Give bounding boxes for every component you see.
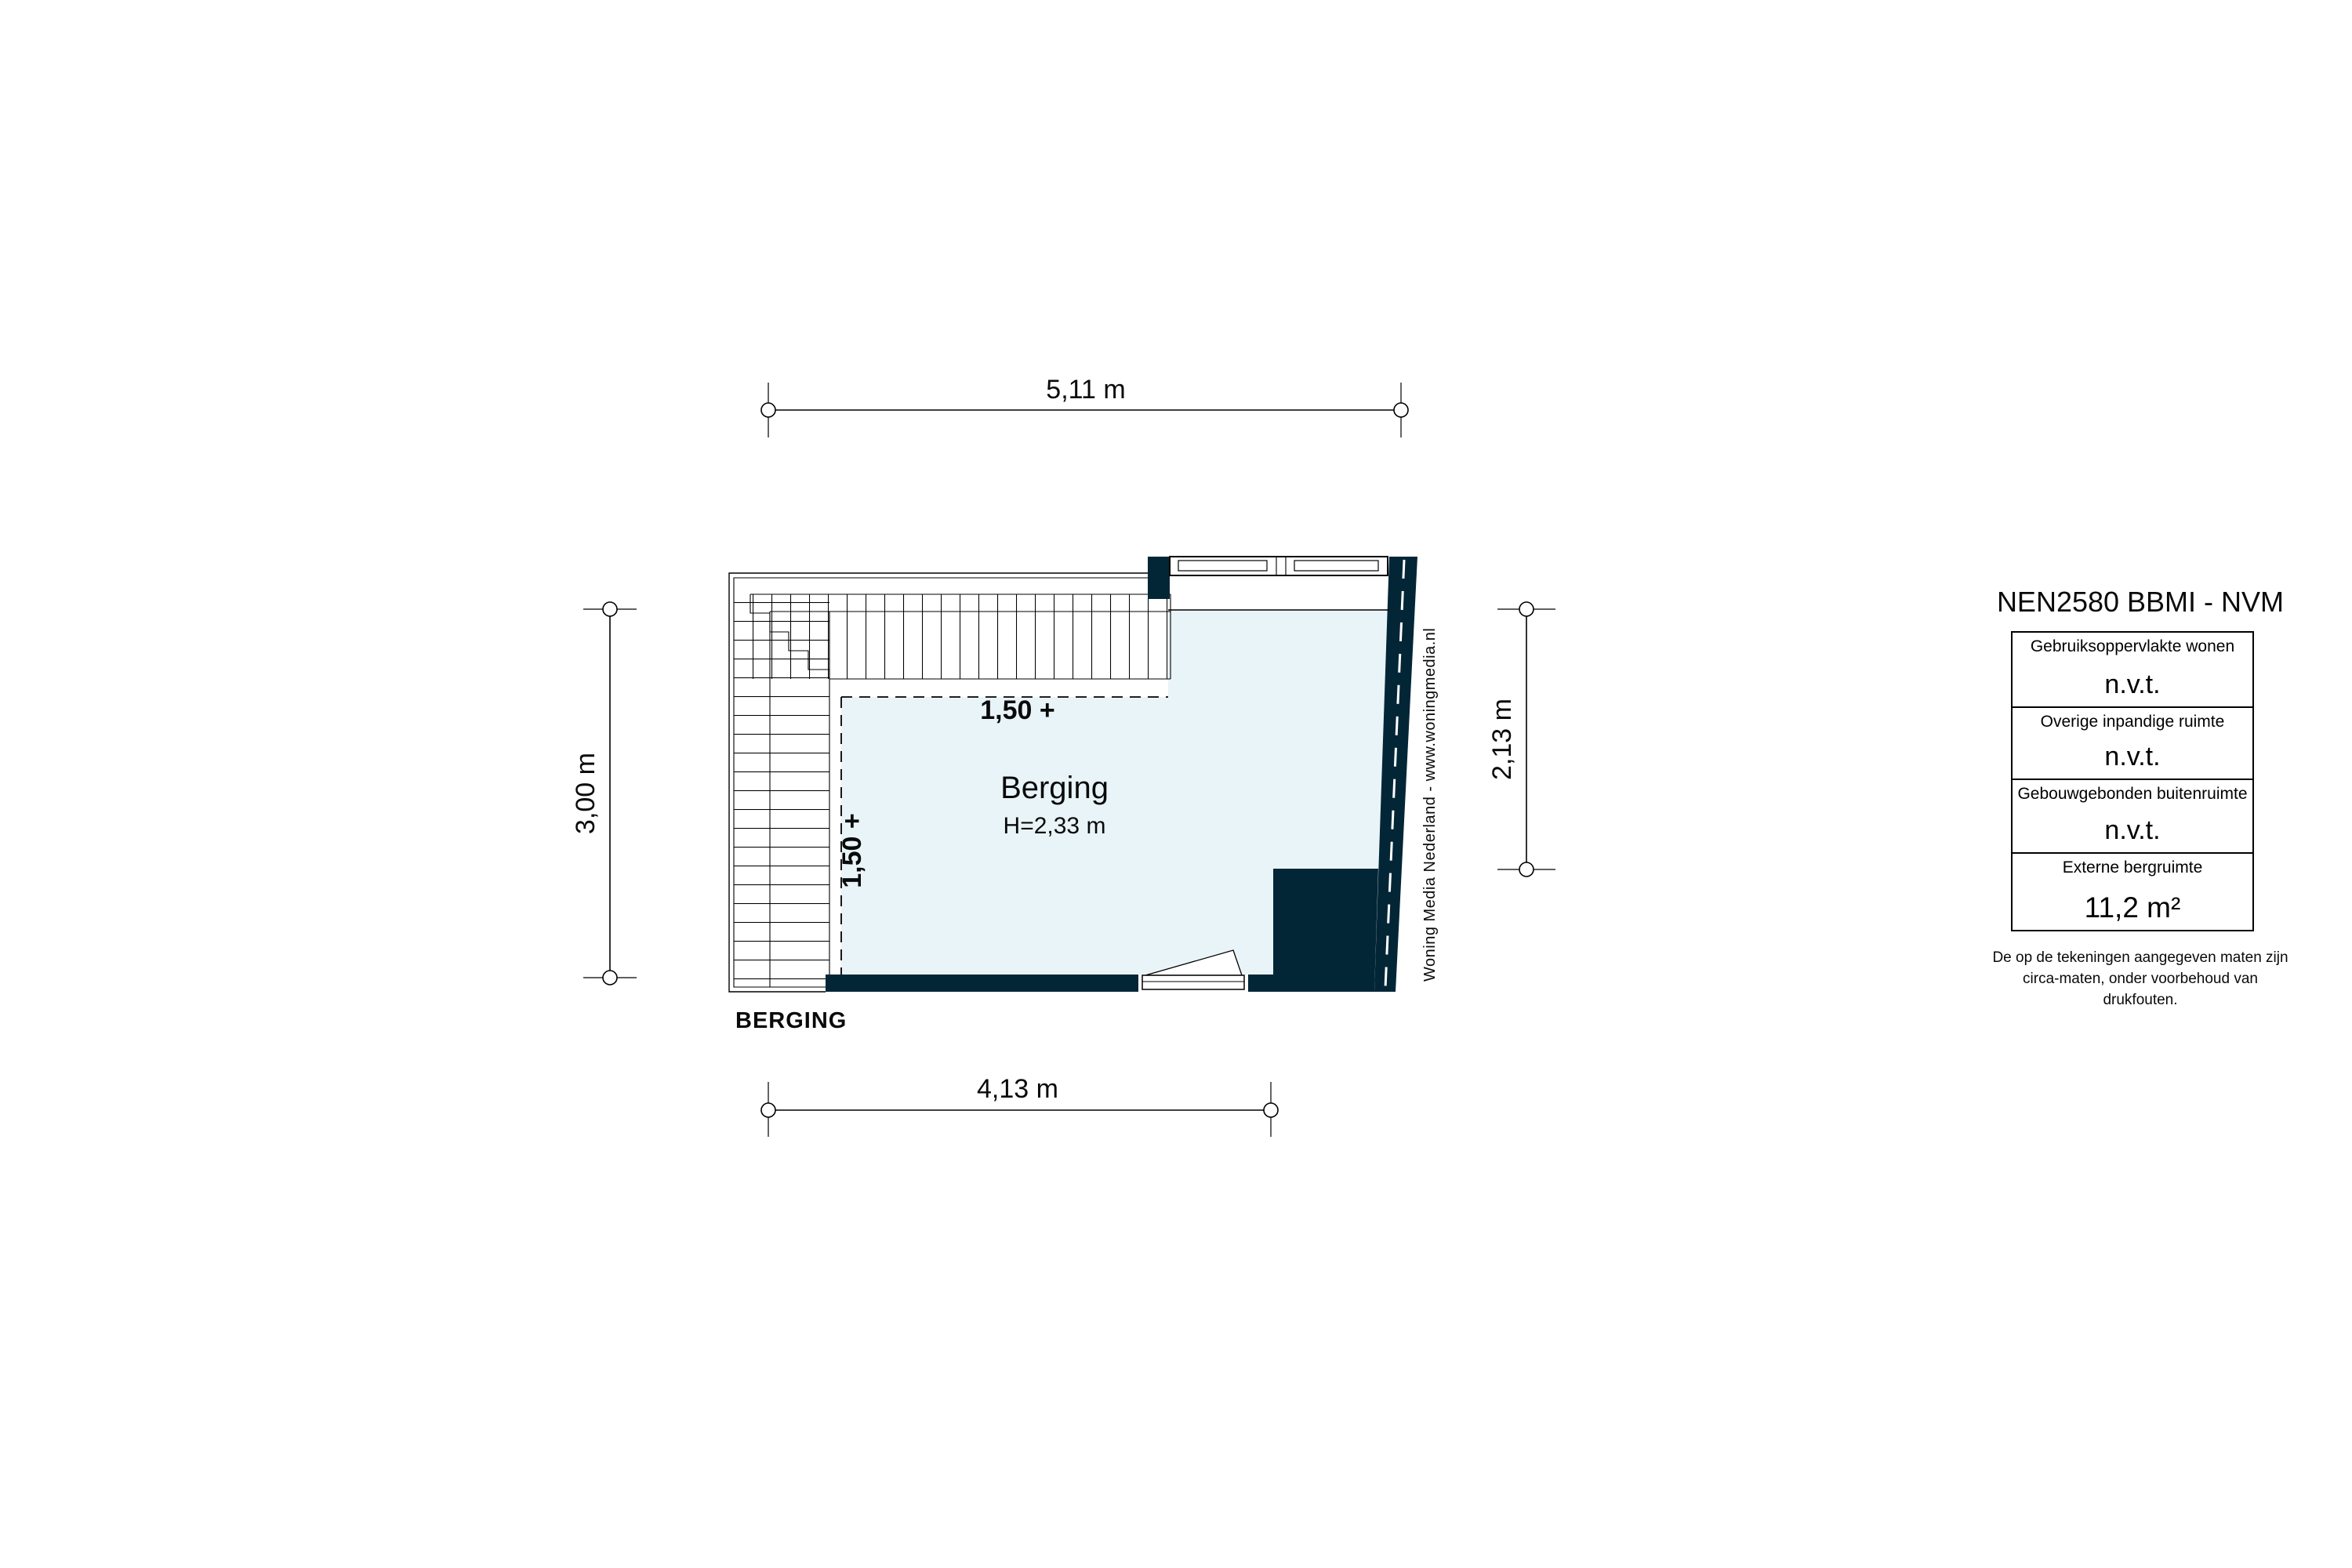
dim-label-left: 3,00 m (571, 753, 601, 834)
dimension-right: 2,13 m (1487, 602, 1555, 877)
disclaimer-line-1: De op de tekeningen aangegeven maten zij… (1984, 947, 2297, 968)
table-row: Externe bergruimte 11,2 m² (2013, 854, 2252, 930)
nen-measurement-table: Gebruiksoppervlakte wonen n.v.t. Overige… (2011, 631, 2254, 931)
dimension-top: 5,11 m (761, 375, 1408, 437)
plan-caption: BERGING (735, 1008, 847, 1033)
row-value: n.v.t. (2104, 816, 2160, 844)
door-leaf (1142, 975, 1244, 989)
dimension-left: 3,00 m (571, 602, 637, 985)
page: 1,50 + 1,50 + Berging (0, 0, 2352, 1568)
dim-label-right: 2,13 m (1487, 699, 1517, 780)
row-label: Gebouwgebonden buitenruimte (2017, 785, 2247, 804)
room-height-label: H=2,33 m (1004, 813, 1106, 839)
window-top (1170, 557, 1388, 575)
table-row: Gebruiksoppervlakte wonen n.v.t. (2013, 633, 2252, 708)
dim-label-top: 5,11 m (1046, 375, 1125, 405)
floor-plan-drawing: 1,50 + 1,50 + Berging (0, 0, 2352, 1568)
row-value: n.v.t. (2104, 742, 2160, 771)
dimension-bottom: 4,13 m (761, 1074, 1278, 1137)
wall-top-block (1148, 557, 1170, 599)
row-label: Overige inpandige ruimte (2041, 713, 2225, 731)
hatch-left-band (734, 601, 829, 987)
contour-label-horizontal: 1,50 + (980, 695, 1054, 725)
contour-label-vertical: 1,50 + (837, 813, 867, 887)
room-name-label: Berging (1000, 771, 1109, 805)
nen-panel-title: NEN2580 BBMI - NVM (1991, 586, 2289, 618)
wall-bottom-right (1248, 975, 1273, 992)
wall-bottom-left (826, 975, 1138, 992)
table-row: Overige inpandige ruimte n.v.t. (2013, 708, 2252, 780)
wall-corner-block (1273, 869, 1378, 992)
row-label: Externe bergruimte (2063, 858, 2203, 877)
watermark-text: Woning Media Nederland - www.woningmedia… (1421, 628, 1439, 982)
panel-disclaimer: De op de tekeningen aangegeven maten zij… (1984, 947, 2297, 1011)
disclaimer-line-2: circa-maten, onder voorbehoud van drukfo… (1984, 968, 2297, 1011)
table-row: Gebouwgebonden buitenruimte n.v.t. (2013, 780, 2252, 853)
row-label: Gebruiksoppervlakte wonen (2031, 637, 2234, 656)
row-value: 11,2 m² (2085, 894, 2181, 922)
dim-label-bottom: 4,13 m (977, 1074, 1058, 1104)
row-value: n.v.t. (2104, 670, 2160, 699)
